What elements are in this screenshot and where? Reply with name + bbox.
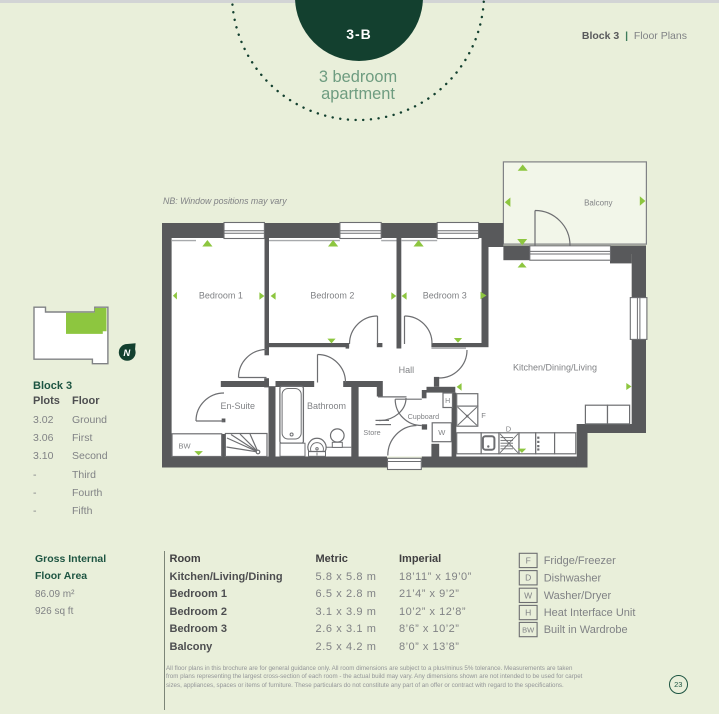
svg-text:F: F	[481, 411, 486, 420]
svg-text:W: W	[438, 428, 446, 437]
svg-text:D: D	[506, 424, 512, 433]
svg-text:Kitchen/Dining/Living: Kitchen/Dining/Living	[513, 363, 597, 373]
svg-text:Hall: Hall	[399, 365, 415, 375]
svg-text:H: H	[525, 608, 531, 618]
svg-text:W: W	[524, 590, 532, 600]
svg-text:En-Suite: En-Suite	[221, 401, 256, 411]
svg-text:D: D	[525, 573, 531, 583]
svg-text:H: H	[445, 398, 450, 405]
svg-text:BW: BW	[522, 626, 535, 635]
svg-text:Built in Wardrobe: Built in Wardrobe	[544, 624, 628, 636]
svg-text:BW: BW	[179, 442, 192, 451]
svg-text:Bedroom 1: Bedroom 1	[199, 290, 243, 300]
svg-text:Balcony: Balcony	[584, 198, 612, 207]
svg-text:Bathroom: Bathroom	[307, 401, 346, 411]
svg-text:Bedroom 2: Bedroom 2	[310, 290, 354, 300]
svg-text:F: F	[526, 555, 531, 565]
svg-text:Cupboard: Cupboard	[408, 412, 440, 421]
svg-text:Store: Store	[363, 428, 380, 437]
svg-text:Dishwasher: Dishwasher	[544, 572, 602, 584]
svg-text:Fridge/Freezer: Fridge/Freezer	[544, 555, 616, 567]
svg-text:Heat Interface Unit: Heat Interface Unit	[544, 607, 636, 619]
svg-text:Washer/Dryer: Washer/Dryer	[544, 590, 612, 602]
svg-text:N: N	[123, 348, 131, 359]
svg-text:Bedroom 3: Bedroom 3	[423, 290, 467, 300]
